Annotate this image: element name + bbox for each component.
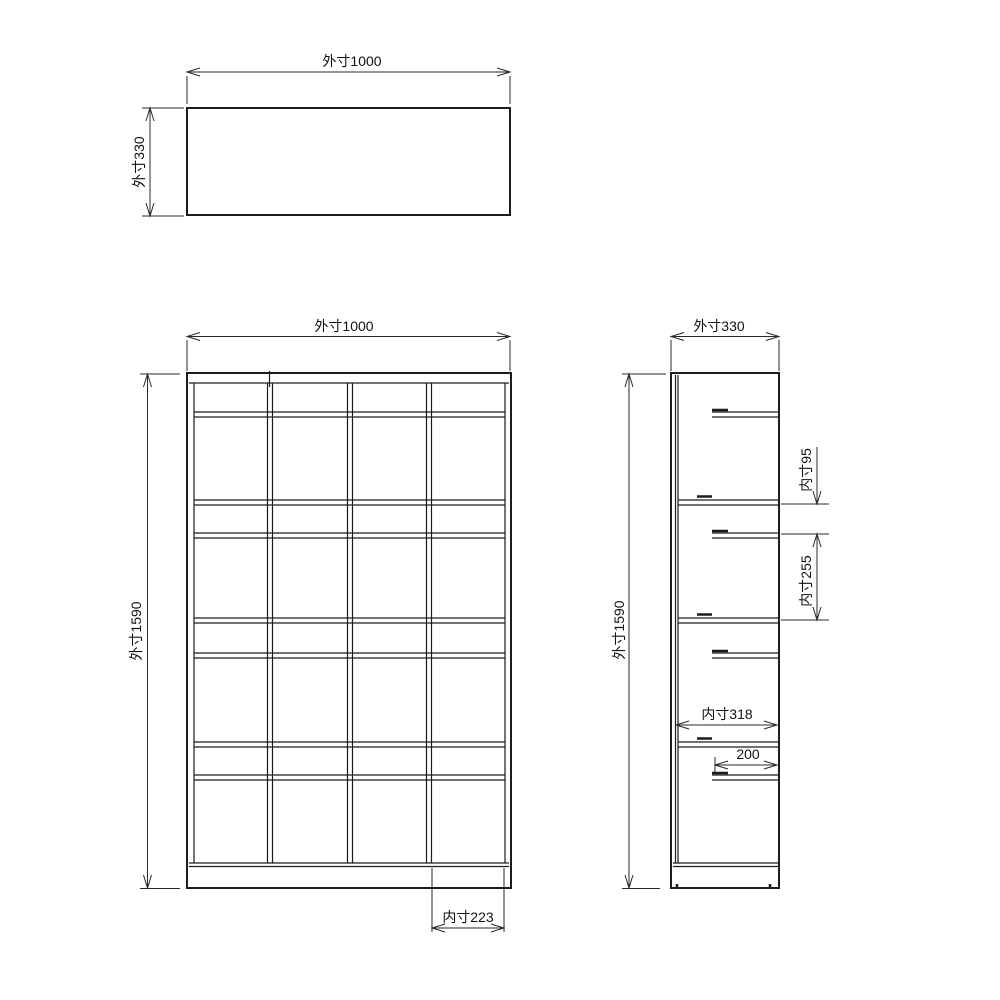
drawing-page: 外寸1000 外寸330 外寸1000 外寸1590 内寸223 外寸330 外…: [0, 0, 1000, 1000]
side-view-dimension-lines: [629, 337, 817, 889]
top-view: 外寸1000 外寸330: [131, 53, 510, 216]
side-view-depth-label: 外寸330: [693, 318, 745, 334]
side-view-inner-depth-label: 内寸318: [701, 706, 753, 722]
top-view-width-label: 外寸1000: [322, 53, 381, 69]
side-view-height-label: 外寸1590: [611, 600, 627, 659]
top-view-dimension-lines: [150, 72, 510, 216]
side-view-outline: [671, 373, 779, 888]
technical-drawing-canvas: 外寸1000 外寸330 外寸1000 外寸1590 内寸223 外寸330 外…: [0, 0, 1000, 1000]
arrowhead-icon: [625, 333, 821, 889]
front-view-inner-width-label: 内寸223: [442, 909, 494, 925]
arrowhead-icon: [144, 333, 511, 933]
top-view-extension-lines: [142, 76, 510, 216]
side-view: 外寸330 外寸1590 内寸95 内寸255 内寸318 200: [611, 318, 829, 889]
front-view-dimension-lines: [148, 337, 511, 929]
top-view-outline: [187, 108, 510, 215]
front-view: 外寸1000 外寸1590 内寸223: [128, 318, 511, 932]
front-view-extension-lines: [140, 340, 510, 932]
front-view-height-label: 外寸1590: [128, 601, 144, 660]
side-view-inner-height-small-label: 内寸95: [798, 448, 814, 492]
front-view-inner-frame: [189, 383, 509, 867]
top-view-depth-label: 外寸330: [131, 136, 147, 188]
side-view-base-plinth: [673, 863, 778, 867]
side-view-extension-lines: [622, 340, 829, 889]
arrowhead-icon: [146, 68, 510, 216]
side-view-shelf-depth-label: 200: [736, 746, 760, 762]
side-view-back-panel: [676, 375, 679, 863]
front-view-shelves: [194, 412, 505, 780]
front-view-outline: [187, 373, 511, 888]
side-view-inner-height-large-label: 内寸255: [798, 555, 814, 607]
front-view-width-label: 外寸1000: [314, 318, 373, 334]
